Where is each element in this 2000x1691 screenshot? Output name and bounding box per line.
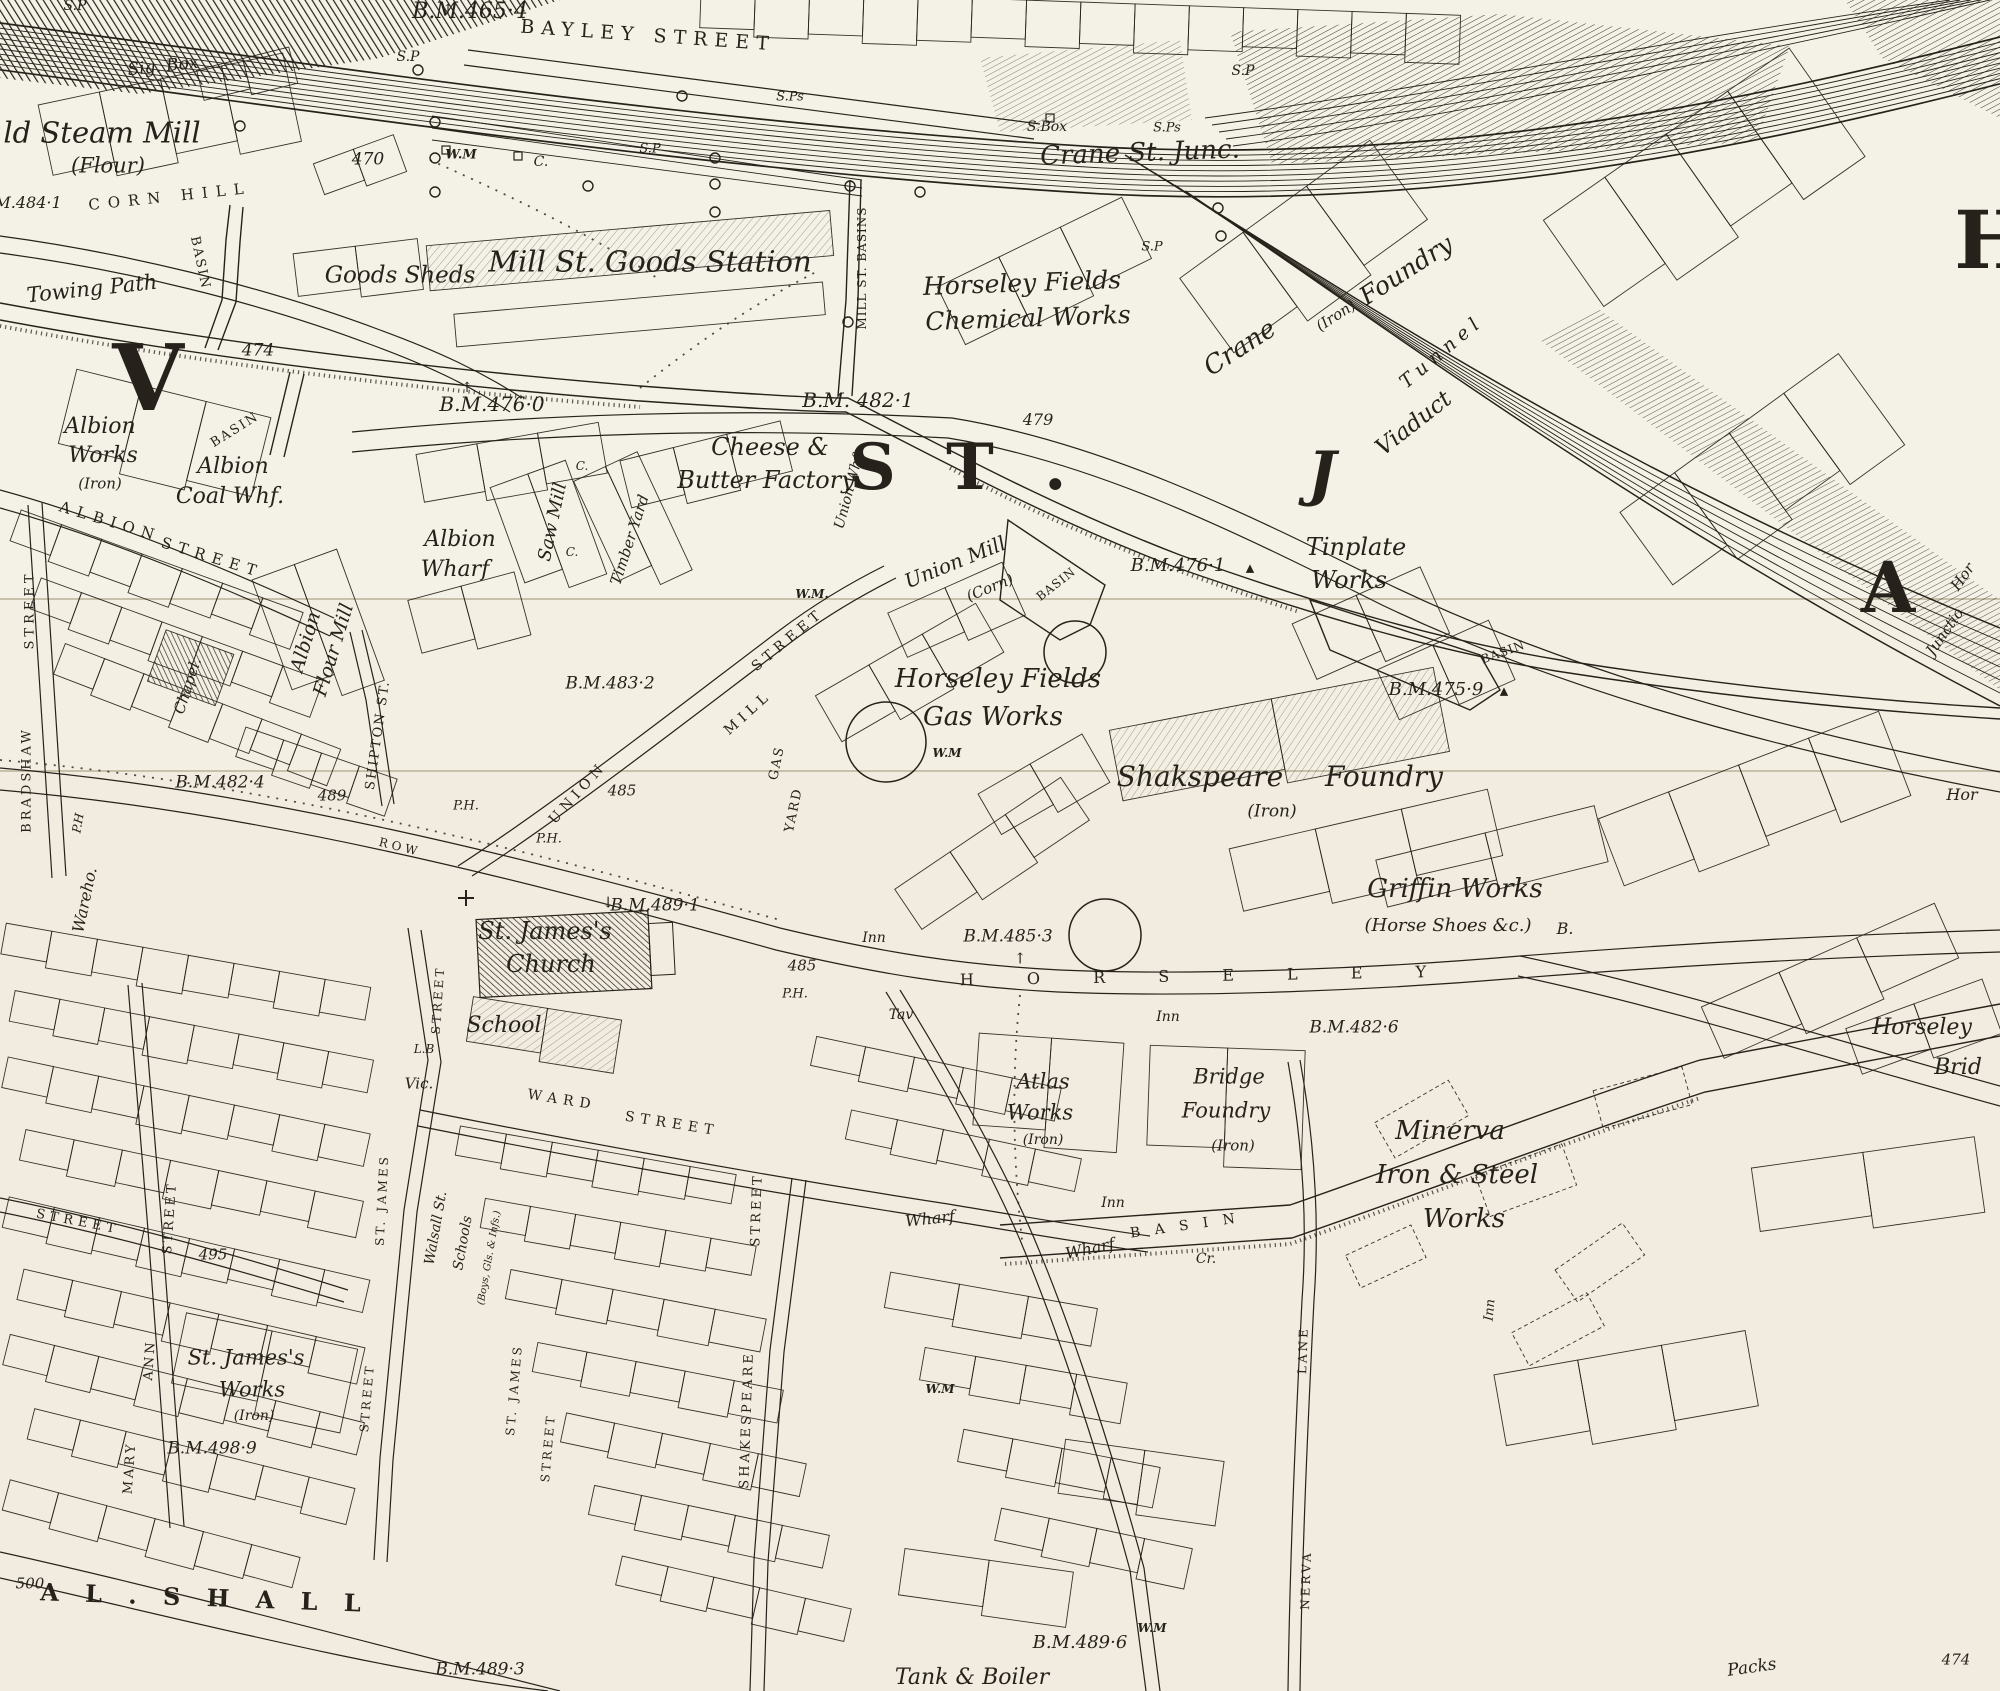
paper-background xyxy=(0,0,2000,1691)
map-viewport[interactable]: S.PB.M.465·4↑BAYLEY STREETS.PSig. BoxS.P… xyxy=(0,0,2000,1691)
map-canvas xyxy=(0,0,2000,1691)
